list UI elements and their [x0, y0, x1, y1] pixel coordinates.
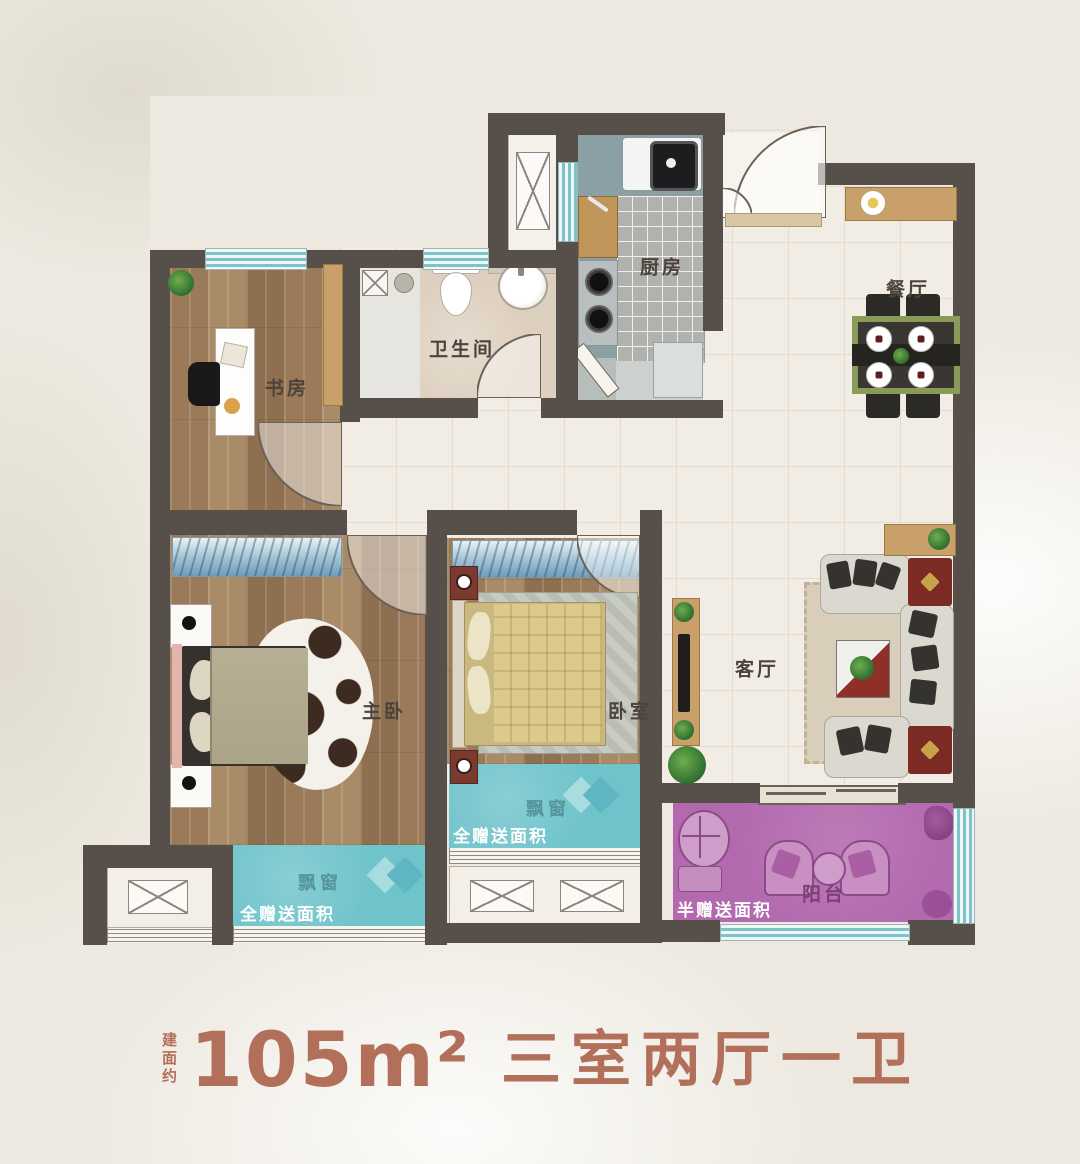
lamp — [182, 776, 196, 790]
floor-plant — [668, 746, 706, 784]
layout-description: 三室两厅一卫 — [501, 1030, 921, 1090]
window-sill — [107, 926, 214, 943]
plant — [928, 528, 950, 550]
lamp — [456, 758, 472, 774]
desk-items — [220, 342, 248, 369]
balcony-basin-cross — [682, 835, 720, 837]
plant — [168, 270, 194, 296]
desk-chair — [188, 362, 220, 406]
bedroom-door — [577, 535, 640, 598]
wall — [640, 535, 662, 923]
balcony-side-window — [953, 808, 975, 924]
sofa-cushion — [836, 726, 865, 756]
sliding-door-rail — [836, 789, 896, 792]
wall — [425, 923, 662, 943]
wall — [150, 510, 347, 535]
window-sill — [233, 926, 427, 943]
plate — [908, 362, 934, 388]
study-door — [258, 422, 342, 506]
plate — [908, 326, 934, 352]
bathroom-label: 卫生间 — [429, 335, 495, 362]
ac-platform-x — [470, 880, 534, 912]
plan-title: 建面约 105m² 三室两厅一卫 — [0, 1022, 1080, 1098]
red-mat — [908, 726, 952, 774]
bay-window-label: 飘窗 — [526, 795, 570, 821]
wall — [425, 535, 447, 945]
sofa-cushion — [826, 560, 852, 589]
lamp — [182, 616, 196, 630]
wall — [212, 845, 233, 945]
half-gift-area-label: 半赠送面积 — [677, 896, 772, 921]
kitchen-label: 厨房 — [640, 253, 684, 280]
plate — [866, 326, 892, 352]
wall — [427, 510, 577, 535]
fridge — [653, 342, 703, 398]
wall — [662, 920, 720, 942]
master-bedroom-label: 主卧 — [362, 697, 406, 724]
outside-area-top-right — [818, 96, 982, 163]
sofa-cushion — [910, 644, 939, 671]
study-label: 书房 — [265, 374, 309, 401]
decor-plate — [860, 190, 886, 216]
centerpiece-plant — [893, 348, 909, 364]
red-mat — [908, 558, 952, 606]
full-gift-area-label: 全赠送面积 — [453, 822, 548, 847]
wall — [640, 510, 662, 535]
built-area-prefix: 建面约 — [159, 1032, 180, 1086]
wall — [83, 845, 107, 945]
ac-platform-x — [560, 880, 624, 912]
bathroom-window — [423, 248, 489, 270]
master-bed-blanket — [210, 648, 308, 764]
plant — [674, 602, 694, 622]
stove-burner — [585, 305, 613, 333]
balcony-label: 阳台 — [802, 880, 846, 907]
wall — [953, 185, 975, 808]
master-window-curtain — [172, 537, 342, 577]
window-sill — [449, 848, 642, 864]
desk-items — [224, 398, 240, 414]
bookshelf — [323, 264, 343, 406]
stove-burner — [585, 268, 613, 296]
master-bedroom-door — [347, 535, 427, 615]
floor-drain — [362, 270, 388, 296]
sliding-door-rail — [766, 792, 826, 795]
wall — [488, 113, 725, 135]
balcony-bottom-window — [720, 924, 910, 941]
wall — [488, 113, 508, 252]
entry-door-sill — [725, 213, 822, 227]
wall — [150, 250, 170, 847]
outside-area-top-left — [150, 96, 488, 248]
bedroom-label: 卧室 — [608, 697, 652, 724]
bed-blanket — [494, 604, 602, 742]
balcony-basin-cross — [699, 816, 701, 858]
wall — [703, 113, 723, 331]
sliding-door — [758, 785, 906, 805]
living-room-label: 客厅 — [735, 655, 779, 682]
tv — [678, 634, 690, 712]
plant — [674, 720, 694, 740]
shower-head — [394, 273, 414, 293]
plate — [866, 362, 892, 388]
sofa-cushion — [909, 679, 937, 706]
balcony-pot — [922, 890, 952, 918]
wall — [556, 250, 578, 418]
floor-plan-page: { "page": {"type": "apartment-floor-plan… — [0, 0, 1080, 1164]
wall — [578, 400, 723, 418]
shaft-window — [558, 162, 578, 242]
area-value: 105m² — [190, 1022, 471, 1098]
lamp — [456, 574, 472, 590]
full-gift-area-label: 全赠送面积 — [240, 900, 335, 925]
study-window — [205, 248, 307, 270]
balcony-basin — [678, 810, 730, 868]
coffee-table-plant — [850, 656, 874, 680]
sofa-cushion — [852, 559, 877, 588]
wall — [662, 783, 760, 803]
bay-window-label: 飘窗 — [298, 869, 342, 895]
dining-label: 餐厅 — [886, 275, 930, 302]
wall — [898, 783, 975, 803]
ac-platform-x — [128, 880, 188, 914]
balcony-plant — [924, 806, 954, 840]
kitchen-faucet — [666, 158, 676, 168]
wall — [818, 163, 975, 185]
master-bed-headboard — [172, 644, 182, 768]
sofa-cushion — [908, 610, 938, 639]
balcony-cabinet — [678, 866, 722, 892]
sofa-cushion — [864, 724, 892, 754]
wall — [360, 398, 478, 418]
duct-shaft-x — [516, 152, 550, 230]
wall — [340, 266, 360, 422]
